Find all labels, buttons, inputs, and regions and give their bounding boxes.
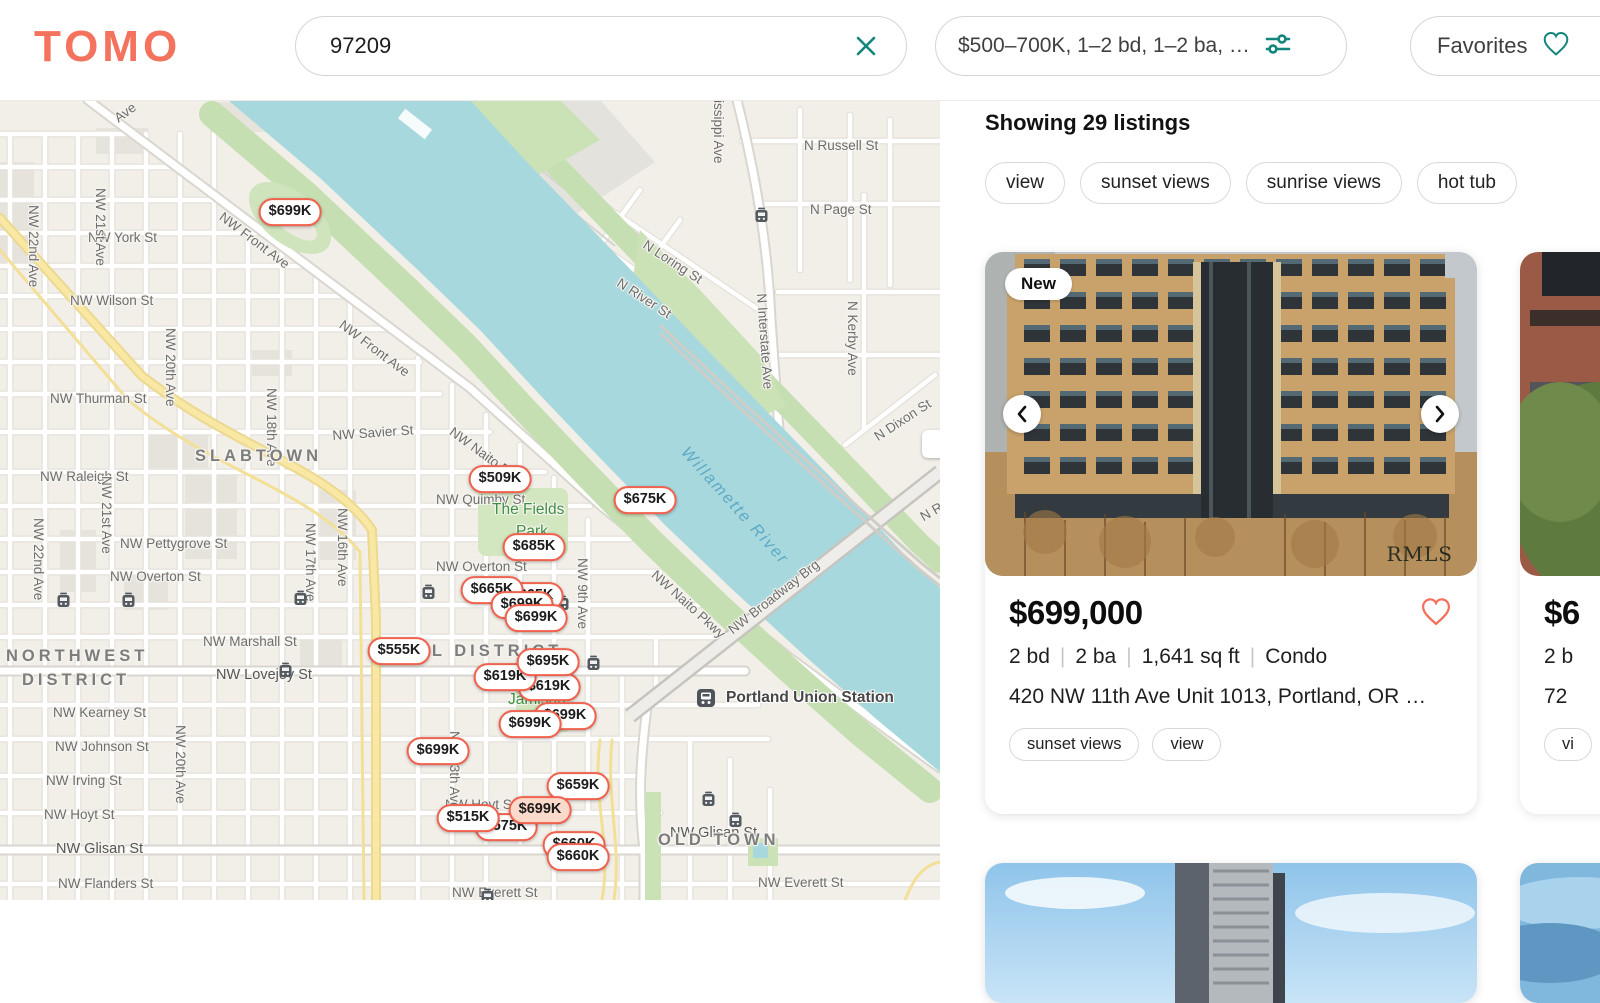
rmls-watermark: RMLS — [1386, 542, 1453, 566]
map-label: NW Pettygrove St — [120, 537, 227, 551]
map-label: issippi Ave — [712, 100, 726, 164]
listing-address: 72 — [1544, 685, 1600, 709]
map-label: NW Kearney St — [53, 706, 146, 720]
listing-details: $699,000 2 bd|2 ba|1,641 sq ft|Condo 420… — [985, 576, 1477, 785]
filters-label: $500–700K, 1–2 bd, 1–2 ba, … — [958, 34, 1250, 58]
listing-specs: 2 bd|2 ba|1,641 sq ft|Condo — [1009, 645, 1453, 669]
listing-card-bottom[interactable] — [985, 863, 1477, 1003]
map-label: NW Flanders St — [58, 877, 153, 891]
map-label: DISTRICT — [22, 672, 130, 689]
listing-card[interactable]: New RMLS $699,000 2 bd|2 ba|1,641 sq ft|… — [985, 252, 1477, 814]
listing-photo[interactable]: New RMLS — [985, 252, 1477, 576]
map-label: NW Johnson St — [55, 740, 149, 754]
new-badge: New — [1005, 268, 1072, 300]
filter-chip[interactable]: view — [985, 162, 1065, 204]
listing-card-bottom-partial[interactable] — [1520, 863, 1600, 1003]
listing-heart-icon[interactable] — [1419, 596, 1453, 630]
listing-photo-art — [985, 252, 1477, 576]
listing-tag[interactable]: vi — [1544, 728, 1592, 761]
spec-item: Condo — [1265, 645, 1327, 668]
spec-item: 2 ba — [1075, 645, 1116, 668]
filter-chip[interactable]: sunset views — [1080, 162, 1231, 204]
map-label: The Fields — [492, 502, 564, 518]
map-label: N Russell St — [804, 139, 878, 153]
search-pill[interactable] — [295, 16, 907, 76]
photo-next-button[interactable] — [1421, 395, 1459, 433]
map-price-pin[interactable]: $699K — [505, 604, 568, 632]
listing-photo-art — [1520, 863, 1600, 1003]
map-label: NW 21st Ave — [94, 188, 108, 266]
map-canvas[interactable]: AveNW York StNW Wilson StNW Thurman StNW… — [0, 100, 940, 900]
favorites-label: Favorites — [1437, 33, 1527, 59]
map-label: NW 22nd Ave — [32, 518, 46, 600]
filters-button[interactable]: $500–700K, 1–2 bd, 1–2 ba, … — [935, 16, 1347, 76]
listing-tag-row: sunset viewsview — [1009, 728, 1453, 761]
map-label: NW Thurman St — [50, 392, 147, 406]
map-label: NW 9th Ave — [576, 558, 590, 629]
map-label: NW 22nd Ave — [27, 205, 41, 287]
top-bar: TOMO $500–700K, 1–2 bd, 1–2 ba, … Favori… — [0, 0, 1600, 101]
map-label: NW Glisan St — [56, 842, 143, 857]
listing-address: 420 NW 11th Ave Unit 1013, Portland, OR … — [1009, 685, 1453, 709]
map-control[interactable] — [922, 430, 940, 458]
map-price-pin[interactable]: $675K — [614, 486, 677, 514]
favorites-heart-icon — [1541, 30, 1571, 63]
map-label: NW Marshall St — [203, 635, 297, 649]
search-input[interactable] — [328, 32, 812, 60]
map-label: N Page St — [810, 203, 872, 217]
listing-specs: 2 b — [1544, 645, 1600, 669]
filter-chip[interactable]: sunrise views — [1246, 162, 1402, 204]
map-label: NW Lovejoy St — [216, 668, 312, 683]
listing-photo-art — [1520, 252, 1600, 576]
filter-chip[interactable]: hot tub — [1417, 162, 1517, 204]
results-panel: Showing 29 listings viewsunset viewssunr… — [940, 100, 1600, 900]
map-label: N Kerby Ave — [846, 301, 860, 376]
sliders-icon — [1264, 32, 1292, 61]
map-label: NW 20th Ave — [174, 725, 188, 804]
map-price-pin[interactable]: $699K — [407, 737, 470, 765]
listing-tag[interactable]: view — [1152, 728, 1221, 761]
map-price-pin[interactable]: $699K — [499, 710, 562, 738]
map-label: NW Overton St — [436, 560, 527, 574]
map-price-pin[interactable]: $509K — [469, 465, 532, 493]
spec-item: 2 bd — [1009, 645, 1050, 668]
map-label: NW Hoyt St — [44, 808, 115, 822]
listing-photo-art — [985, 863, 1477, 1003]
map-label: NW Irving St — [46, 774, 122, 788]
listing-tag[interactable]: sunset views — [1009, 728, 1139, 761]
spec-separator: | — [1060, 645, 1065, 668]
map-label: NORTHWEST — [6, 648, 148, 665]
listing-card-partial[interactable]: $6 2 b 72 vi — [1520, 252, 1600, 814]
map-label: Portland Union Station — [726, 690, 894, 706]
map-label: NW 16th Ave — [336, 508, 350, 587]
filter-chip-row: viewsunset viewssunrise viewshot tub — [985, 162, 1517, 204]
map-label: NW Raleigh St — [40, 470, 129, 484]
map-price-pin[interactable]: $685K — [503, 533, 566, 561]
tomo-logo[interactable]: TOMO — [34, 22, 181, 72]
map-label: NW Overton St — [110, 570, 201, 584]
spec-separator: | — [1250, 645, 1255, 668]
results-heading: Showing 29 listings — [985, 110, 1190, 136]
clear-search-icon[interactable] — [850, 31, 882, 63]
map-price-pin[interactable]: $699K — [259, 198, 322, 226]
listing-photo[interactable] — [1520, 252, 1600, 576]
photo-prev-button[interactable] — [1003, 395, 1041, 433]
favorites-button[interactable]: Favorites — [1410, 16, 1600, 76]
map-price-pin[interactable]: $660K — [547, 843, 610, 871]
map-label: NW 21st Ave — [100, 476, 114, 554]
listing-price: $6 — [1544, 594, 1580, 632]
spec-separator: | — [1126, 645, 1131, 668]
map-price-pin[interactable]: $695K — [517, 648, 580, 676]
map-price-pin[interactable]: $515K — [437, 804, 500, 832]
listing-details: $6 2 b 72 vi — [1520, 576, 1600, 785]
map-label: NW Wilson St — [70, 294, 153, 308]
map-price-pin[interactable]: $699K — [509, 796, 572, 824]
map-label: NW 20th Ave — [164, 328, 178, 407]
spec-item: 1,641 sq ft — [1142, 645, 1240, 668]
map-label: SLABTOWN — [195, 448, 322, 465]
map-price-pin[interactable]: $555K — [368, 637, 431, 665]
map-label: OLD TOWN — [658, 832, 780, 849]
map-label: NW Everett St — [758, 876, 844, 890]
listing-price: $699,000 — [1009, 594, 1143, 632]
